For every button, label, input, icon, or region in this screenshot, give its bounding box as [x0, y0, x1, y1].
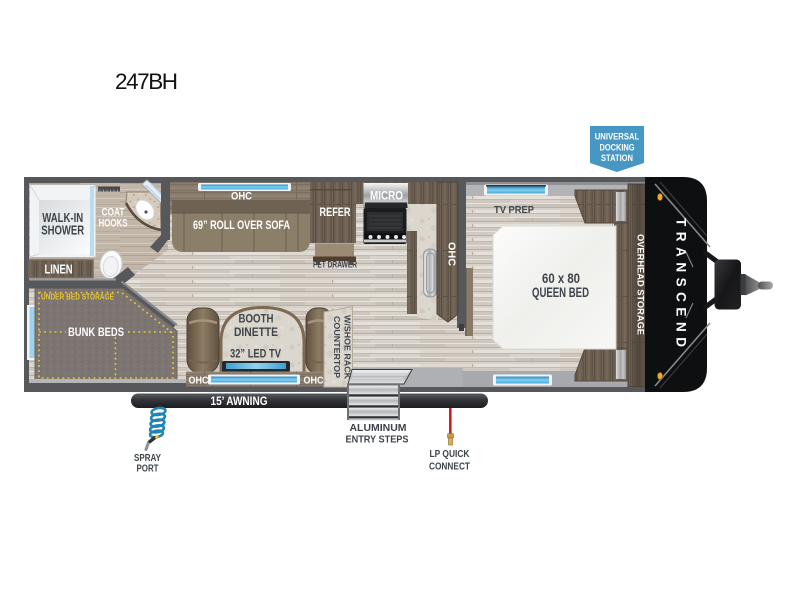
- svg-text:247BH: 247BH: [115, 69, 178, 94]
- svg-text:REFER: REFER: [320, 207, 352, 219]
- svg-text:LP QUICK: LP QUICK: [430, 449, 471, 460]
- svg-text:SPRAY: SPRAY: [134, 453, 161, 464]
- svg-text:OHC: OHC: [189, 375, 209, 387]
- svg-text:LINEN: LINEN: [45, 263, 73, 277]
- svg-text:OHC: OHC: [304, 375, 324, 387]
- svg-text:32” LED TV: 32” LED TV: [230, 349, 281, 361]
- svg-text:QUEEN BED: QUEEN BED: [532, 284, 589, 300]
- svg-text:PORT: PORT: [137, 464, 159, 475]
- svg-text:BUNK BEDS: BUNK BEDS: [68, 325, 124, 339]
- svg-text:CONNECT: CONNECT: [429, 462, 470, 473]
- svg-text:ENTRY STEPS: ENTRY STEPS: [346, 434, 409, 446]
- svg-text:69” ROLL OVER SOFA: 69” ROLL OVER SOFA: [193, 218, 290, 232]
- svg-text:SHOWER: SHOWER: [41, 223, 84, 238]
- svg-text:DINETTE: DINETTE: [234, 327, 278, 339]
- svg-text:TRANSCEND: TRANSCEND: [674, 218, 689, 348]
- svg-text:OHC: OHC: [446, 242, 458, 266]
- svg-text:TV PREP: TV PREP: [494, 204, 534, 216]
- svg-text:COUNTERTOP: COUNTERTOP: [332, 316, 342, 378]
- svg-text:15’ AWNING: 15’ AWNING: [211, 396, 268, 408]
- svg-text:PET DRAWER: PET DRAWER: [313, 260, 357, 270]
- svg-text:UNDER BED STORAGE: UNDER BED STORAGE: [41, 292, 114, 302]
- svg-text:OVERHEAD STORAGE: OVERHEAD STORAGE: [636, 234, 646, 335]
- svg-text:HOOKS: HOOKS: [99, 218, 128, 230]
- svg-text:MICRO: MICRO: [370, 189, 403, 203]
- svg-text:BOOTH: BOOTH: [239, 314, 274, 326]
- svg-text:W/SHOE RACK: W/SHOE RACK: [343, 315, 353, 380]
- svg-text:ALUMINUM: ALUMINUM: [350, 422, 407, 434]
- svg-text:STATION: STATION: [601, 153, 633, 163]
- svg-text:DOCKING: DOCKING: [600, 142, 635, 152]
- svg-text:UNIVERSAL: UNIVERSAL: [595, 132, 640, 142]
